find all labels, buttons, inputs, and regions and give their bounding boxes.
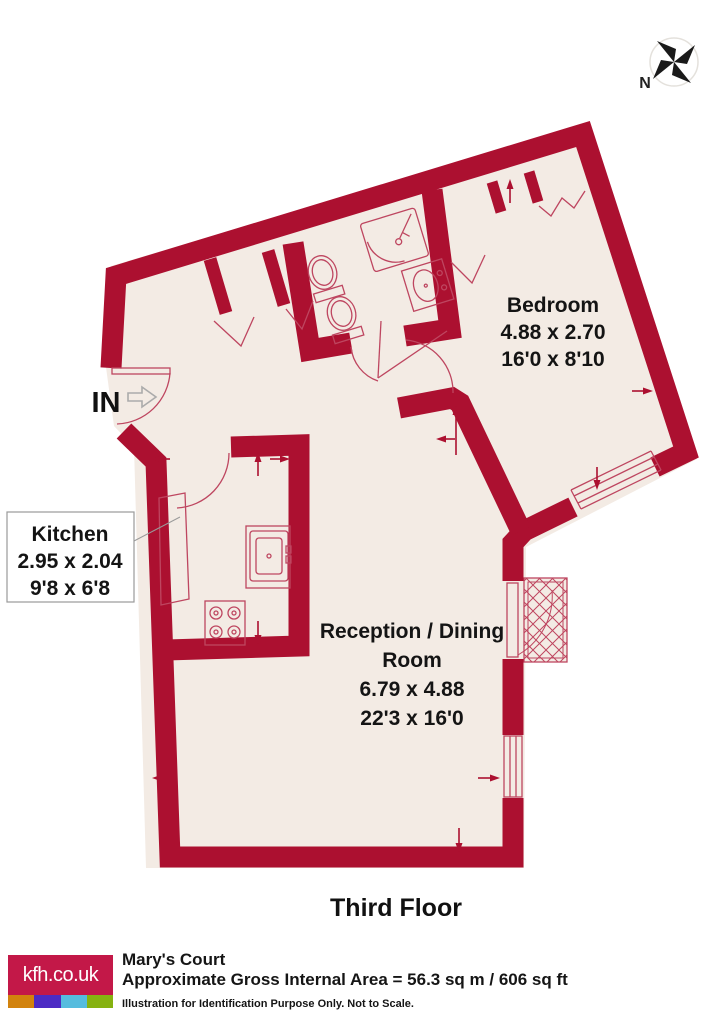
svg-text:6.79 x 4.88: 6.79 x 4.88 <box>359 678 464 701</box>
strip-purple <box>34 995 60 1008</box>
svg-text:16'0 x 8'10: 16'0 x 8'10 <box>501 348 604 371</box>
footer: kfh.co.uk Mary's Court Approximate Gross… <box>0 938 715 1033</box>
footer-text: Mary's Court Approximate Gross Internal … <box>122 950 568 1010</box>
compass-icon: N <box>639 38 698 92</box>
svg-text:2.95 x 2.04: 2.95 x 2.04 <box>17 550 122 573</box>
balcony <box>518 578 567 662</box>
entrance-label: IN <box>92 387 121 419</box>
kfh-logo-color-strip <box>8 995 113 1008</box>
floorplan-page: IN N Bedroom 4.88 x 2.70 16'0 x 8'10 Kit… <box>0 0 715 1033</box>
bedroom-label: Bedroom 4.88 x 2.70 16'0 x 8'10 <box>500 294 605 371</box>
area-line: Approximate Gross Internal Area = 56.3 s… <box>122 970 568 990</box>
svg-text:Bedroom: Bedroom <box>507 294 599 317</box>
strip-green <box>87 995 113 1008</box>
svg-text:9'8 x 6'8: 9'8 x 6'8 <box>30 577 110 600</box>
strip-orange <box>8 995 34 1008</box>
svg-text:4.88 x 2.70: 4.88 x 2.70 <box>500 321 605 344</box>
floorplan-svg: IN N Bedroom 4.88 x 2.70 16'0 x 8'10 Kit… <box>0 0 715 930</box>
kfh-logo: kfh.co.uk <box>8 955 113 995</box>
compass-north-label: N <box>639 75 651 92</box>
disclaimer: Illustration for Identification Purpose … <box>122 998 568 1010</box>
property-name: Mary's Court <box>122 950 568 970</box>
svg-text:Reception / Dining: Reception / Dining <box>320 620 504 643</box>
svg-text:Room: Room <box>382 649 442 672</box>
kfh-logo-text: kfh.co.uk <box>23 964 99 987</box>
floor-title: Third Floor <box>330 894 462 922</box>
svg-text:22'3 x 16'0: 22'3 x 16'0 <box>360 707 463 730</box>
strip-blue <box>61 995 87 1008</box>
svg-text:Kitchen: Kitchen <box>31 523 108 546</box>
